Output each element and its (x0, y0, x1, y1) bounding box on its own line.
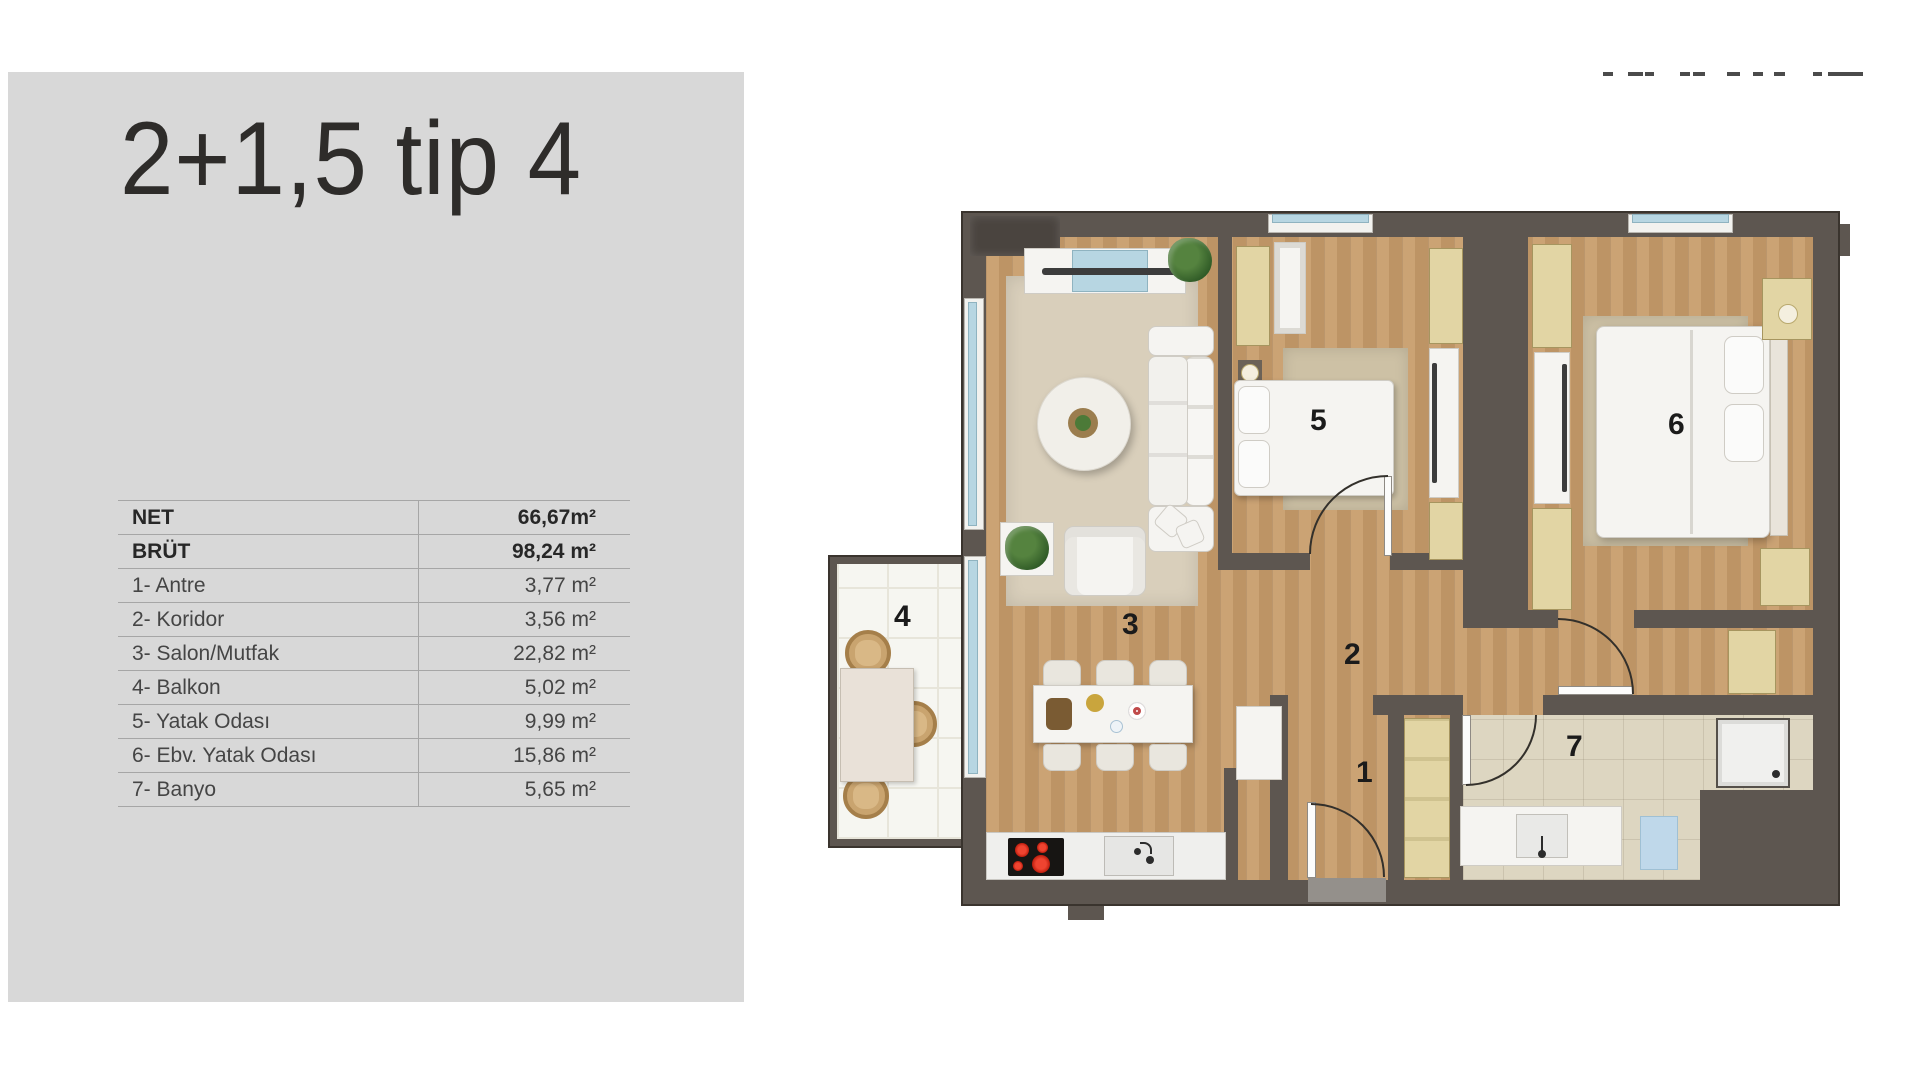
table-row: 6- Ebv. Yatak Odası15,86 m² (118, 739, 630, 773)
table-row: 7- Banyo5,65 m² (118, 773, 630, 807)
row-value: 66,67m² (418, 501, 630, 534)
row-label: NET (118, 501, 418, 534)
table-row: 1- Antre3,77 m² (118, 569, 630, 603)
logo-dash (1680, 72, 1690, 76)
row-value: 15,86 m² (418, 739, 630, 772)
room-label-6: 6 (1668, 408, 1685, 442)
table-row: 3- Salon/Mutfak22,82 m² (118, 637, 630, 671)
logo-dash (1828, 72, 1863, 76)
table-row: BRÜT98,24 m² (118, 535, 630, 569)
plan-title: 2+1,5 tip 4 (120, 100, 582, 219)
row-value: 9,99 m² (418, 705, 630, 738)
row-label: 3- Salon/Mutfak (118, 637, 418, 670)
row-label: 5- Yatak Odası (118, 705, 418, 738)
room-label-2: 2 (1344, 638, 1361, 672)
logo-dash (1628, 72, 1643, 76)
info-panel: 2+1,5 tip 4 NET66,67m²BRÜT98,24 m²1- Ant… (8, 72, 744, 1002)
logo-dash (1603, 72, 1613, 76)
room-label-4: 4 (894, 600, 911, 634)
row-value: 5,65 m² (418, 773, 630, 806)
logo-dash (1727, 72, 1740, 76)
room-label-3: 3 (1122, 608, 1139, 642)
row-label: 2- Koridor (118, 603, 418, 636)
logo-dash (1693, 72, 1705, 76)
room-labels: 1234567 (828, 208, 1860, 924)
floor-plan: 1234567 (828, 208, 1860, 924)
table-row: 4- Balkon5,02 m² (118, 671, 630, 705)
row-value: 3,77 m² (418, 569, 630, 602)
row-value: 3,56 m² (418, 603, 630, 636)
table-row: NET66,67m² (118, 501, 630, 535)
row-value: 98,24 m² (418, 535, 630, 568)
logo-dash (1645, 72, 1654, 76)
area-table: NET66,67m²BRÜT98,24 m²1- Antre3,77 m²2- … (118, 500, 630, 807)
row-label: 7- Banyo (118, 773, 418, 806)
logo-dash (1813, 72, 1822, 76)
room-label-1: 1 (1356, 756, 1373, 790)
room-label-7: 7 (1566, 730, 1583, 764)
row-label: 4- Balkon (118, 671, 418, 704)
cropped-logo-fragment (1598, 72, 1868, 80)
logo-dash (1753, 72, 1763, 76)
row-value: 5,02 m² (418, 671, 630, 704)
room-label-5: 5 (1310, 404, 1327, 438)
table-row: 5- Yatak Odası9,99 m² (118, 705, 630, 739)
row-value: 22,82 m² (418, 637, 630, 670)
table-row: 2- Koridor3,56 m² (118, 603, 630, 637)
logo-dash (1774, 72, 1785, 76)
row-label: BRÜT (118, 535, 418, 568)
row-label: 6- Ebv. Yatak Odası (118, 739, 418, 772)
row-label: 1- Antre (118, 569, 418, 602)
